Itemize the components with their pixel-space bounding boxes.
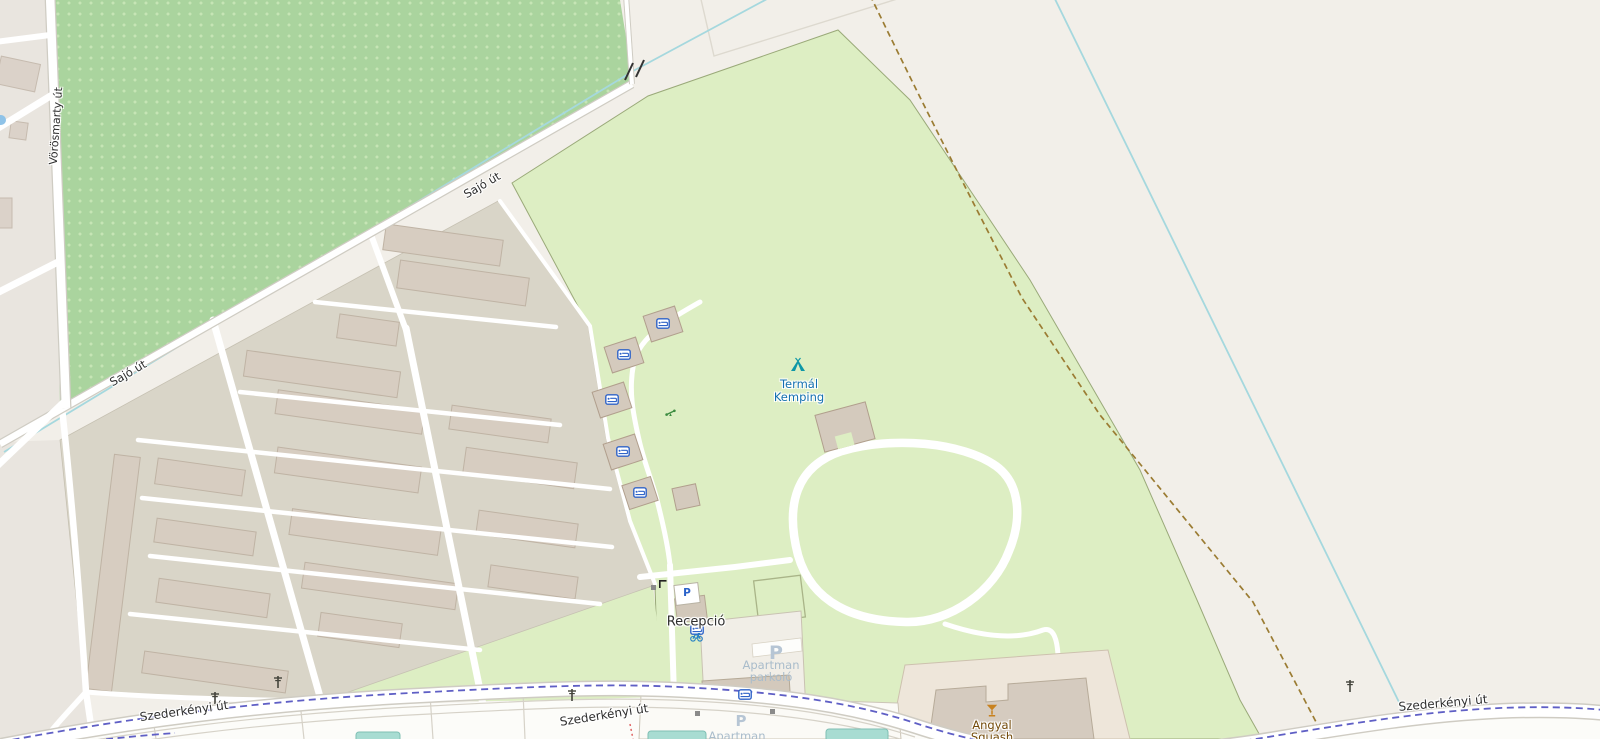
map-canvas[interactable]: Vörösmarty út Sajó út Sajó út Szederkény… (0, 0, 1600, 739)
reception-parking-square (674, 583, 700, 606)
map-svg (0, 0, 1600, 739)
